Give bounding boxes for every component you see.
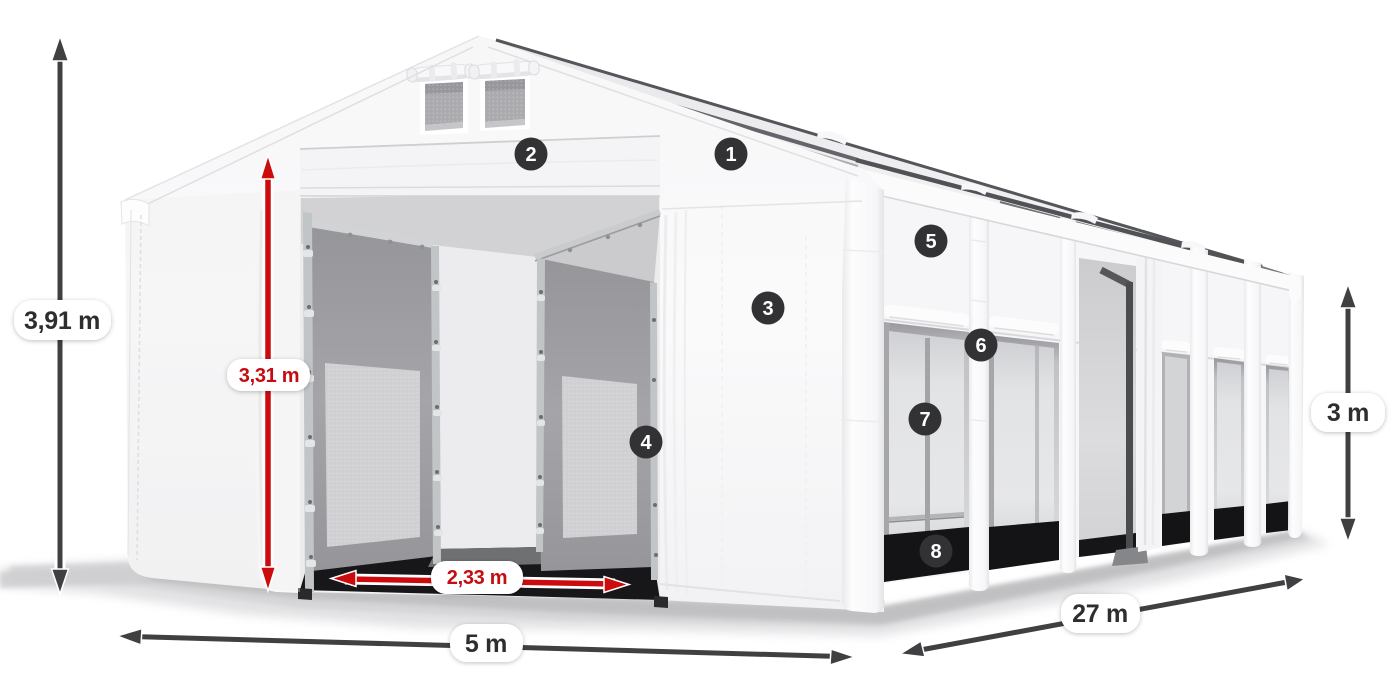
svg-text:2: 2 <box>525 144 536 166</box>
svg-text:4: 4 <box>640 432 652 454</box>
svg-text:1: 1 <box>725 144 736 166</box>
svg-text:5: 5 <box>925 231 936 253</box>
svg-text:7: 7 <box>919 409 930 431</box>
svg-text:2,33 m: 2,33 m <box>447 567 507 589</box>
svg-text:8: 8 <box>930 541 941 563</box>
svg-text:5 m: 5 m <box>465 630 507 658</box>
svg-text:3 m: 3 m <box>1327 399 1369 427</box>
svg-text:6: 6 <box>975 335 986 357</box>
svg-text:3,31 m: 3,31 m <box>239 365 299 387</box>
svg-text:27 m: 27 m <box>1072 600 1128 628</box>
svg-text:3: 3 <box>762 298 773 320</box>
svg-text:3,91 m: 3,91 m <box>24 307 100 335</box>
